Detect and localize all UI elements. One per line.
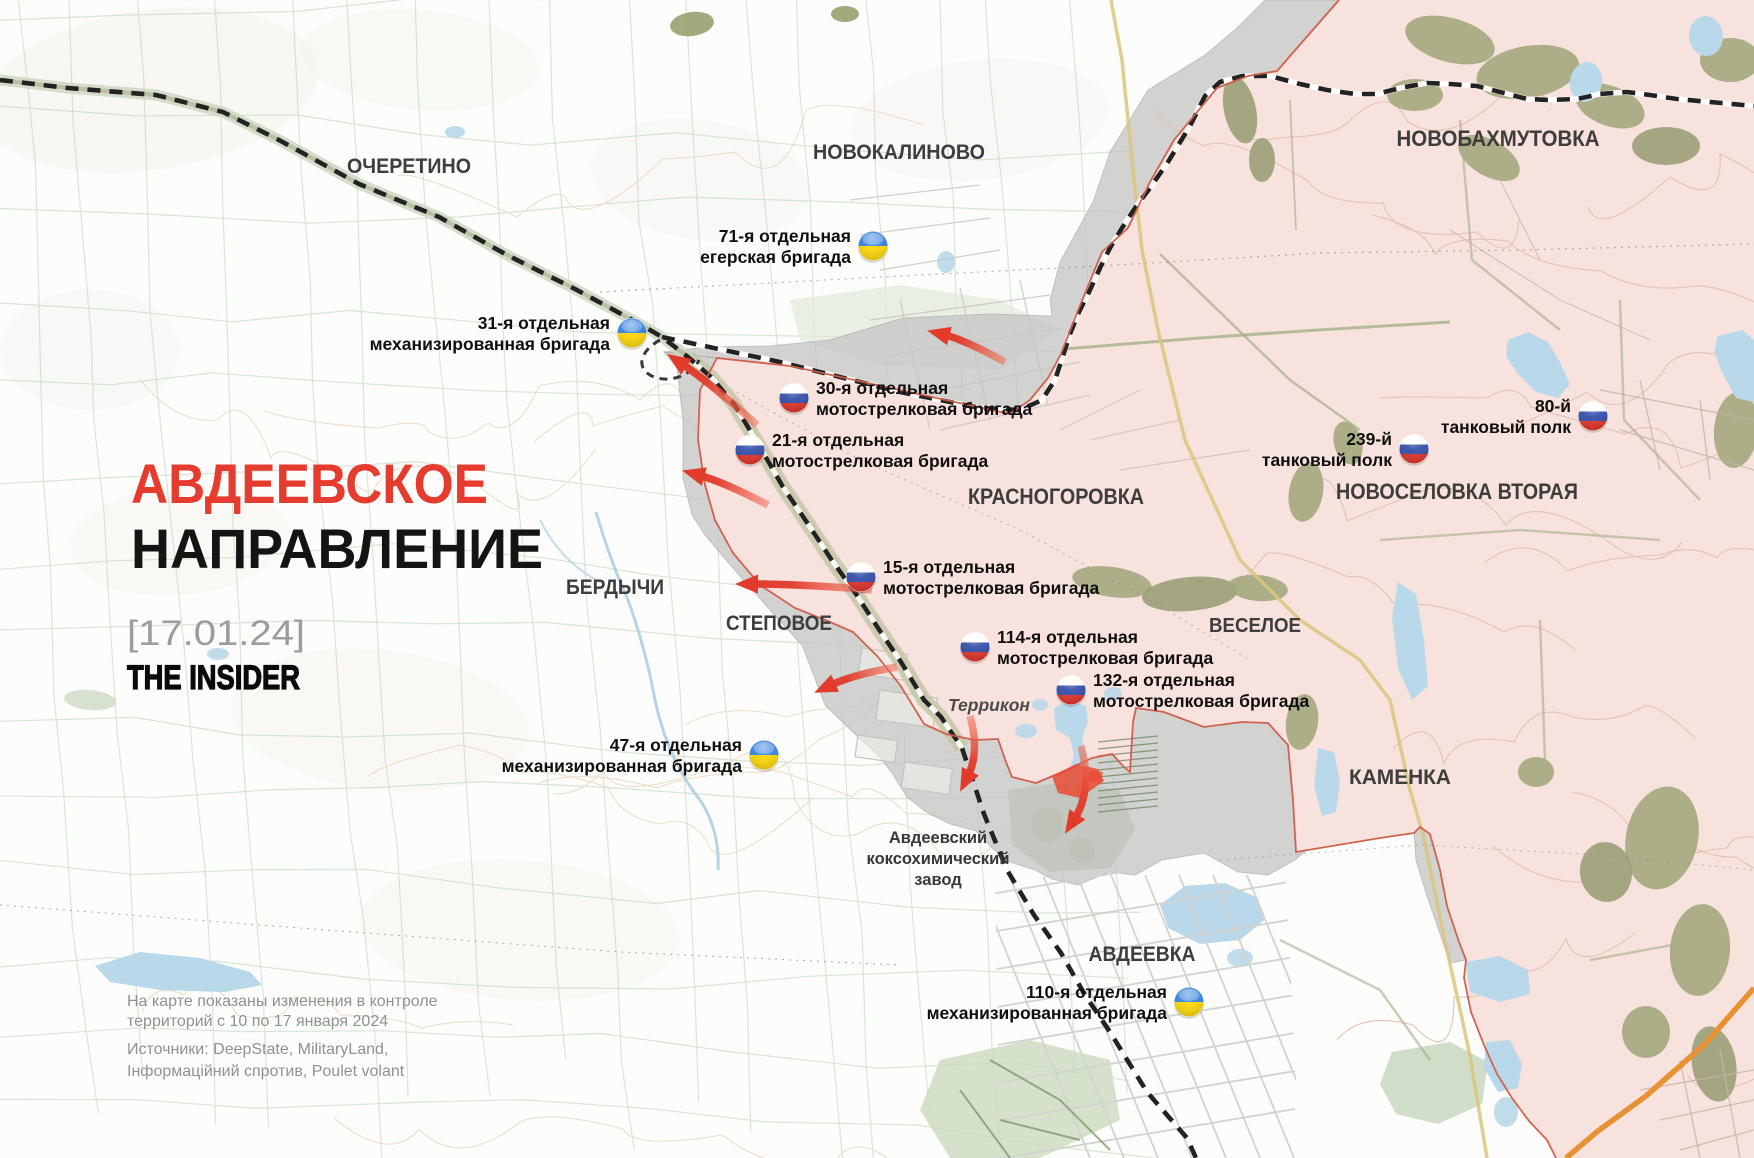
svg-text:танковый полк: танковый полк [1262,450,1392,470]
svg-text:47-я отдельная: 47-я отдельная [610,735,742,755]
svg-text:Источники: DeepState, Military: Источники: DeepState, MilitaryLand, [127,1041,388,1058]
svg-text:механизированная бригада: механизированная бригада [370,334,611,354]
svg-text:114-я отдельная: 114-я отдельная [997,627,1138,647]
svg-text:ВЕСЕЛОЕ: ВЕСЕЛОЕ [1209,615,1301,637]
svg-text:танковый полк: танковый полк [1441,417,1571,437]
svg-text:егерская бригада: егерская бригада [700,247,851,267]
svg-text:80-й: 80-й [1535,396,1571,416]
svg-text:АВДЕЕВСКОЕ: АВДЕЕВСКОЕ [131,452,488,515]
svg-text:15-я отдельная: 15-я отдельная [883,557,1015,577]
svg-text:На карте показаны изменения в: На карте показаны изменения в контроле [127,993,438,1010]
svg-text:132-я отдельная: 132-я отдельная [1093,670,1235,690]
svg-text:Авдеевский: Авдеевский [889,829,987,847]
svg-text:БЕРДЫЧИ: БЕРДЫЧИ [566,576,664,599]
svg-text:НОВОСЕЛОВКА ВТОРАЯ: НОВОСЕЛОВКА ВТОРАЯ [1336,479,1578,504]
svg-text:НОВОБАХМУТОВКА: НОВОБАХМУТОВКА [1397,126,1600,151]
svg-text:КАМЕНКА: КАМЕНКА [1349,766,1451,789]
svg-text:71-я отдельная: 71-я отдельная [719,226,851,246]
svg-text:территорий с 10 по 17 января 2: территорий с 10 по 17 января 2024 [127,1013,388,1030]
svg-text:КРАСНОГОРОВКА: КРАСНОГОРОВКА [968,484,1144,509]
svg-text:21-я отдельная: 21-я отдельная [772,430,904,450]
svg-text:мотострелковая бригада: мотострелковая бригада [997,648,1214,668]
svg-text:239-й: 239-й [1346,429,1392,449]
svg-text:мотострелковая бригада: мотострелковая бригада [883,578,1100,598]
svg-text:мотострелковая бригада: мотострелковая бригада [1093,691,1310,711]
svg-text:ОЧЕРЕТИНО: ОЧЕРЕТИНО [347,155,471,178]
svg-text:Інформаційний спротив, Poulet: Інформаційний спротив, Poulet volant [127,1063,405,1080]
svg-text:АВДЕЕВКА: АВДЕЕВКА [1089,943,1196,966]
svg-text:[17.01.24]: [17.01.24] [127,614,305,653]
svg-text:СТЕПОВОЕ: СТЕПОВОЕ [726,612,832,635]
svg-text:мотострелковая бригада: мотострелковая бригада [816,399,1033,419]
svg-text:мотострелковая бригада: мотострелковая бригада [772,451,989,471]
svg-text:НОВОКАЛИНОВО: НОВОКАЛИНОВО [813,141,985,164]
svg-text:110-я отдельная: 110-я отдельная [1026,982,1167,1002]
svg-text:THE INSIDER: THE INSIDER [127,659,300,697]
svg-text:механизированная бригада: механизированная бригада [502,756,743,776]
svg-text:завод: завод [914,871,962,889]
svg-text:механизированная бригада: механизированная бригада [927,1003,1168,1023]
svg-text:коксохимический: коксохимический [867,850,1010,868]
svg-text:НАПРАВЛЕНИЕ: НАПРАВЛЕНИЕ [131,517,543,580]
svg-text:31-я отдельная: 31-я отдельная [478,313,610,333]
svg-text:30-я отдельная: 30-я отдельная [816,378,948,398]
svg-text:Террикон: Террикон [948,695,1030,715]
